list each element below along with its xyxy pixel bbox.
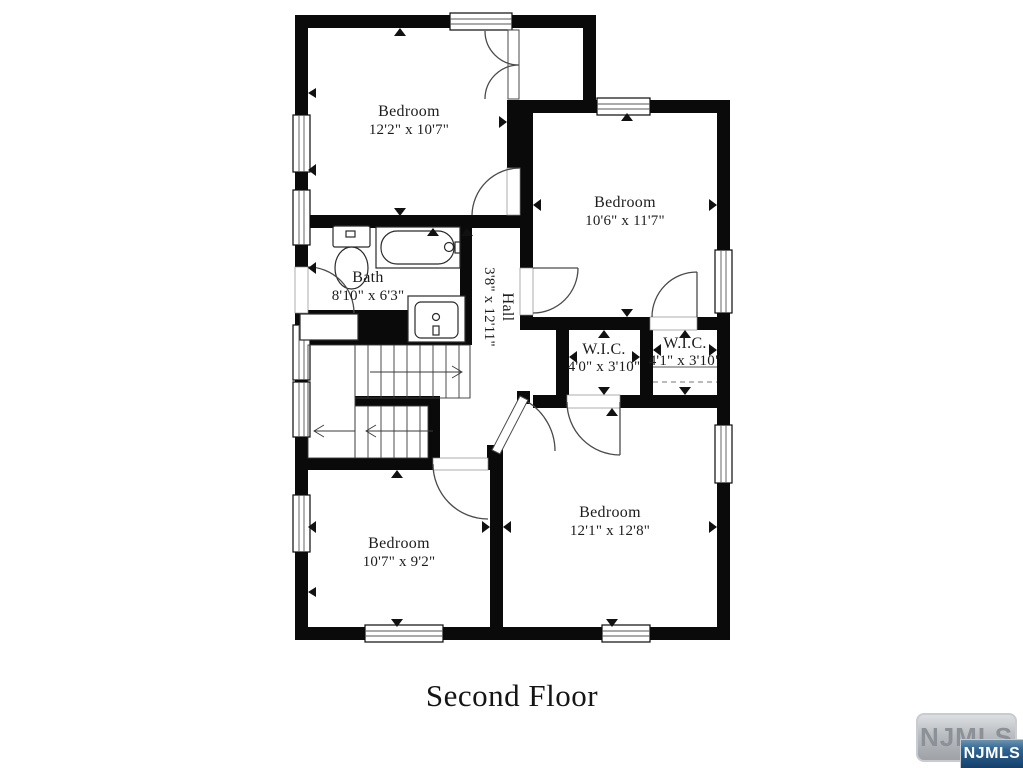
room-dims-bedroom-ne: 10'6" x 11'7" [585, 213, 665, 229]
stair-lower-flight [355, 406, 428, 458]
room-label-bedroom-ne: Bedroom [594, 194, 656, 211]
room-label-bath: Bath [352, 269, 383, 286]
angled-door-leaf [492, 396, 528, 454]
room-label-hall-group: Hall 3'8" x 12'11" [481, 267, 516, 347]
room-label-hall: Hall [499, 293, 516, 322]
window [293, 190, 310, 245]
window [715, 250, 732, 313]
door-arc [433, 464, 488, 519]
njmls-watermark-front-label: NJMLS [964, 745, 1021, 763]
door-arc [652, 272, 697, 317]
room-label-wic-right: W.I.C. [663, 335, 706, 352]
stair-treads-upper [368, 345, 459, 398]
window [293, 495, 310, 552]
window [293, 115, 310, 172]
window [293, 382, 310, 437]
sink-vanity-icon [408, 296, 465, 342]
stair-landing [308, 345, 355, 458]
stair-direction-arrow-up [370, 366, 462, 378]
room-dims-bath: 8'10" x 6'3" [332, 288, 405, 304]
linen-shelf [300, 314, 358, 340]
room-label-wic-left: W.I.C. [582, 341, 625, 358]
floor-title: Second Floor [426, 678, 598, 713]
window [597, 98, 650, 115]
room-dims-bedroom-nw: 12'2" x 10'7" [369, 122, 449, 138]
room-dims-wic-right: 4'1" x 3'10" [649, 353, 722, 369]
room-label-bedroom-nw: Bedroom [378, 103, 440, 120]
room-dims-bedroom-se: 12'1" x 12'8" [570, 523, 650, 539]
stair-treads-lower [368, 406, 420, 458]
door-arc [528, 402, 555, 451]
window [365, 625, 443, 642]
stair-upper-flight [355, 345, 470, 398]
wic-rod-shelf [653, 367, 717, 382]
bathtub-icon [376, 227, 460, 268]
room-label-bedroom-sw: Bedroom [368, 535, 430, 552]
door-arc [533, 268, 578, 313]
window [715, 425, 732, 483]
window [602, 625, 650, 642]
floor-plan-page: Bedroom 12'2" x 10'7" Bedroom 10'6" x 11… [0, 0, 1023, 768]
room-dims-hall: 3'8" x 12'11" [481, 267, 497, 347]
room-dims-bedroom-sw: 10'7" x 9'2" [363, 554, 436, 570]
floor-plan-svg: Bedroom 12'2" x 10'7" Bedroom 10'6" x 11… [0, 0, 1023, 768]
window [450, 13, 512, 30]
room-label-bedroom-se: Bedroom [579, 504, 641, 521]
stair-direction-arrow-down [314, 425, 433, 437]
njmls-watermark-front: NJMLS [960, 739, 1023, 768]
room-dims-wic-left: 4'0" x 3'10" [568, 359, 641, 375]
